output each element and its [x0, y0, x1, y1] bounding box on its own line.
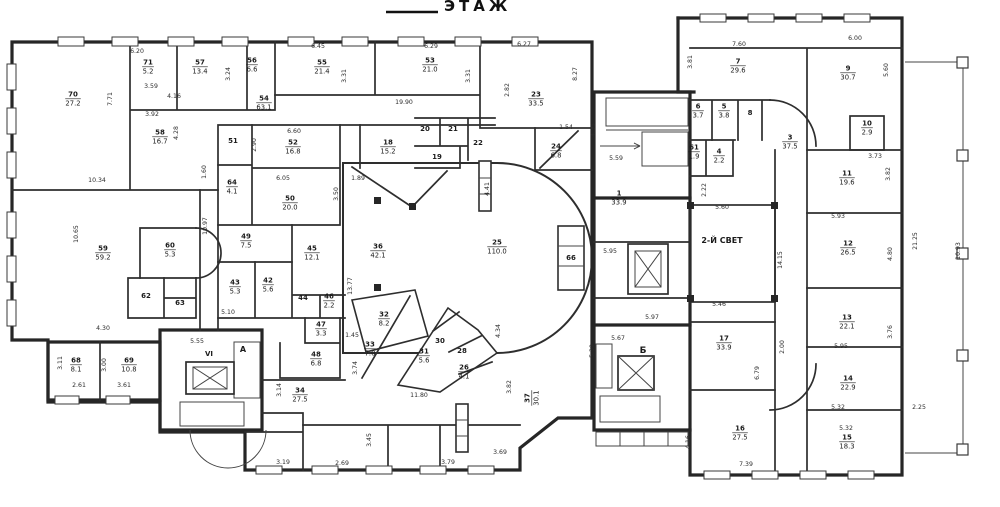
- dim-label: 2.90: [251, 138, 258, 152]
- dim-label: 3.92: [145, 111, 159, 118]
- dim-label: 6.05: [276, 175, 290, 182]
- room-label: 5959.2: [95, 245, 111, 262]
- dim-label: 5.60: [883, 63, 890, 77]
- room-area: 29.6: [730, 67, 745, 75]
- room-num: 15: [842, 434, 852, 442]
- room-area: 3.8: [719, 112, 730, 120]
- room-label: 5321.0: [422, 57, 438, 74]
- room-num: 56: [247, 57, 257, 65]
- room-num: 59: [98, 245, 108, 253]
- room-num: 50: [285, 195, 295, 203]
- dim-label: 3.73: [868, 153, 882, 160]
- room-label: 5713.4: [192, 59, 208, 76]
- dim-label: 7.60: [732, 41, 746, 48]
- room-area: 5.3: [165, 251, 176, 259]
- note-label: VI: [205, 350, 213, 358]
- room-area: 6.6: [247, 66, 258, 74]
- room-area: 10.8: [121, 366, 136, 374]
- dim-label: 5.32: [839, 425, 853, 432]
- room-area: 30.7: [840, 74, 855, 82]
- room-num: 20: [420, 125, 430, 133]
- room-area: 110.0: [487, 248, 506, 256]
- room-label: 644.1: [226, 179, 238, 196]
- dim-label: 10.34: [88, 177, 106, 184]
- room-num: 18: [383, 139, 393, 147]
- dim-label: 5.59: [609, 155, 623, 162]
- dim-label: 2.69: [335, 460, 349, 467]
- room-area: 33.5: [528, 100, 543, 108]
- room-area: 4.1: [459, 373, 470, 381]
- room-label: 53.8: [718, 103, 730, 120]
- room-label: 1422.9: [840, 375, 856, 392]
- room-area: 19.6: [839, 179, 854, 187]
- room-label: 5020.0: [282, 195, 298, 212]
- room-label: 63: [175, 299, 185, 307]
- room-label: 425.6: [262, 277, 274, 294]
- room-num: 51: [228, 137, 238, 145]
- room-label: 42.2: [713, 148, 725, 165]
- dim-label: 2.22: [701, 183, 708, 197]
- room-label: 62: [141, 292, 151, 300]
- room-area: 21.4: [314, 68, 329, 76]
- dim-label: 10.97: [202, 217, 209, 235]
- dim-label: 4.41: [484, 182, 491, 196]
- dim-label: 5.10: [221, 309, 235, 316]
- room-area: 22.1: [839, 323, 854, 331]
- room-num: 5: [722, 103, 727, 111]
- room-label: 5463.1: [256, 95, 272, 112]
- room-num: 60: [165, 242, 175, 250]
- note-label: А: [240, 345, 247, 354]
- room-area: 16.8: [285, 148, 300, 156]
- room-num: 49: [241, 233, 251, 241]
- room-label: 5521.4: [314, 59, 330, 76]
- room-area: 4.1: [227, 188, 238, 196]
- room-label: 605.3: [164, 242, 176, 259]
- dim-label: 3.24: [225, 67, 232, 81]
- room-num: 8: [748, 109, 753, 117]
- room-area: 5.6: [419, 357, 430, 365]
- room-num: 42: [263, 277, 273, 285]
- dim-label: 14.15: [777, 251, 784, 269]
- room-label: 246.8: [550, 143, 562, 160]
- dim-label: 5.93: [831, 213, 845, 220]
- room-num: 26: [459, 364, 469, 372]
- dim-label: 3.11: [57, 356, 64, 370]
- room-label: 611.9: [688, 144, 700, 161]
- dim-label: 8.27: [572, 67, 579, 81]
- room-num: 44: [298, 294, 308, 302]
- dim-label: 10.93: [955, 242, 962, 260]
- room-num: 58: [155, 129, 165, 137]
- dim-label: 4.34: [495, 324, 502, 338]
- room-label: 930.7: [840, 65, 856, 82]
- dim-label: 6.29: [424, 43, 438, 50]
- room-num: 69: [124, 357, 134, 365]
- room-area: 20.0: [282, 204, 297, 212]
- room-label: 6910.8: [121, 357, 137, 374]
- floor-plan-page: ЭТАЖ: [0, 0, 1000, 507]
- dim-label: 3.82: [885, 167, 892, 181]
- room-num: 57: [195, 59, 205, 67]
- dim-label: 5.32: [831, 404, 845, 411]
- dim-label: 5.67: [611, 335, 625, 342]
- dim-label: 4.80: [887, 247, 894, 261]
- room-area: 3.3: [316, 330, 327, 338]
- room-num: 61: [689, 144, 699, 152]
- room-num: 48: [311, 351, 321, 359]
- dim-label: 1.54: [559, 124, 573, 131]
- room-label: 133.9: [611, 190, 627, 207]
- room-area: 16.7: [152, 138, 167, 146]
- room-num: 36: [373, 243, 383, 251]
- room-num: 34: [295, 387, 305, 395]
- dim-label: 4.16: [167, 93, 181, 100]
- dim-label: 3.81: [687, 55, 694, 69]
- room-num: 33: [365, 341, 375, 349]
- dim-label: 4.30: [96, 325, 110, 332]
- room-area: 63.1: [256, 104, 271, 112]
- room-label: 22: [473, 139, 483, 147]
- room-num: 12: [843, 240, 853, 248]
- room-num: 31: [419, 348, 429, 356]
- room-label: 1119.6: [839, 170, 855, 187]
- room-num: 11: [842, 170, 852, 178]
- dim-label: 3.31: [465, 69, 472, 83]
- room-num: 6: [696, 103, 701, 111]
- dim-label: 5.95: [603, 248, 617, 255]
- room-label: 51: [228, 137, 238, 145]
- room-area: 27.5: [732, 434, 747, 442]
- room-label: 315.6: [418, 348, 430, 365]
- floor-title: ЭТАЖ: [444, 0, 511, 15]
- dim-label: 6.27: [517, 41, 531, 48]
- dim-label: 4.35: [590, 123, 597, 137]
- dim-label: 1.60: [201, 165, 208, 179]
- room-num: 19: [432, 153, 442, 161]
- room-label: 566.6: [246, 57, 258, 74]
- room-num: 3: [788, 134, 793, 142]
- dim-label: 5.55: [190, 338, 204, 345]
- room-num: 63: [175, 299, 185, 307]
- room-num: 25: [492, 239, 502, 247]
- room-area: 13.4: [192, 68, 207, 76]
- room-num: 62: [141, 292, 151, 300]
- dim-label: 3.61: [117, 382, 131, 389]
- dim-label: 5.95: [834, 343, 848, 350]
- room-num: 55: [317, 59, 327, 67]
- room-num: 7: [736, 58, 741, 66]
- dim-label: 6.20: [130, 48, 144, 55]
- dim-label: 4.16: [685, 435, 692, 449]
- note-label: Б: [640, 346, 647, 356]
- room-label: 21: [448, 125, 458, 133]
- dim-label: 7.71: [107, 92, 114, 106]
- room-area: 37.5: [782, 143, 797, 151]
- room-label: 7027.2: [65, 91, 81, 108]
- room-area: 30.1: [533, 390, 541, 405]
- room-area: 26.5: [840, 249, 855, 257]
- dim-label: 3.00: [101, 358, 108, 372]
- room-area: 7.5: [241, 242, 252, 250]
- dim-label: 3.79: [441, 459, 455, 466]
- room-label: 3427.5: [292, 387, 308, 404]
- room-label: 19: [432, 153, 442, 161]
- floor-plan-svg: ЭТАЖ: [0, 0, 1000, 507]
- room-label: 66: [566, 254, 576, 262]
- room-num: 30: [435, 337, 445, 345]
- room-num: 53: [425, 57, 435, 65]
- room-num: 1: [617, 190, 622, 198]
- room-label: 1322.1: [839, 314, 855, 331]
- room-label: 1627.5: [732, 425, 748, 442]
- room-num: 66: [566, 254, 576, 262]
- dim-label: 2.61: [72, 382, 86, 389]
- dim-label: 5.46: [712, 301, 726, 308]
- room-area: 6.8: [311, 360, 322, 368]
- dim-label: 5.60: [715, 204, 729, 211]
- room-area: 22.9: [840, 384, 855, 392]
- room-num: 23: [531, 91, 541, 99]
- dim-label: 19.90: [395, 99, 413, 106]
- room-area: 2.2: [324, 302, 335, 310]
- dim-label: 3.14: [276, 383, 283, 397]
- dim-label: 2.25: [912, 404, 926, 411]
- room-area: 59.2: [95, 254, 110, 262]
- room-area: 5.6: [263, 286, 274, 294]
- room-area: 1.9: [689, 153, 700, 161]
- dim-label: 11.80: [410, 392, 428, 399]
- room-num: 68: [71, 357, 81, 365]
- room-area: 7.0: [365, 350, 376, 358]
- room-label: 2333.5: [528, 91, 544, 108]
- room-num: 9: [846, 65, 851, 73]
- room-label: 30: [435, 337, 445, 345]
- room-label: 28: [457, 347, 467, 355]
- room-num: 71: [143, 59, 153, 67]
- room-num: 32: [379, 311, 389, 319]
- room-area: 15.2: [380, 148, 395, 156]
- dim-label: 5.39: [589, 344, 596, 358]
- room-label: 1733.9: [716, 335, 732, 352]
- dim-label: 3.31: [341, 69, 348, 83]
- room-area: 21.0: [422, 66, 437, 74]
- dim-label: 3.69: [493, 449, 507, 456]
- room-area: 5.3: [230, 288, 241, 296]
- room-num: 13: [842, 314, 852, 322]
- room-num: 24: [551, 143, 561, 151]
- room-label: 102.9: [861, 120, 873, 137]
- room-area: 8.1: [71, 366, 82, 374]
- room-area: 27.2: [65, 100, 80, 108]
- room-area: 33.9: [716, 344, 731, 352]
- room-label: 497.5: [240, 233, 252, 250]
- dim-label: 10.65: [73, 225, 80, 243]
- dim-label: 6.60: [287, 128, 301, 135]
- room-label: 1226.5: [840, 240, 856, 257]
- room-label: 473.3: [315, 321, 327, 338]
- dim-label: 5.97: [645, 314, 659, 321]
- dim-label: 1.89: [351, 175, 365, 182]
- dim-label: 3.19: [276, 459, 290, 466]
- room-num: 70: [68, 91, 78, 99]
- dim-label: 2.00: [779, 340, 786, 354]
- dim-label: 6.00: [848, 35, 862, 42]
- room-label: 486.8: [310, 351, 322, 368]
- room-label: 435.3: [229, 279, 241, 296]
- room-area: 6.8: [551, 152, 562, 160]
- room-label: 44: [298, 294, 308, 302]
- dim-label: 3.59: [144, 83, 158, 90]
- room-num: 14: [843, 375, 853, 383]
- room-num: 17: [719, 335, 729, 343]
- dim-label: 7.39: [739, 461, 753, 468]
- room-num: 21: [448, 125, 458, 133]
- dim-label: 2.82: [504, 83, 511, 97]
- room-num: 52: [288, 139, 298, 147]
- room-area: 12.1: [304, 254, 319, 262]
- dim-label: 6.79: [754, 366, 761, 380]
- room-label: 20: [420, 125, 430, 133]
- room-num: 37: [524, 393, 532, 403]
- room-area: 33.9: [611, 199, 626, 207]
- room-label: 1518.3: [839, 434, 855, 451]
- room-area: 18.3: [839, 443, 854, 451]
- room-label: 4512.1: [304, 245, 320, 262]
- room-label: 8: [748, 109, 753, 117]
- room-label: 5816.7: [152, 129, 168, 146]
- room-num: 4: [717, 148, 722, 156]
- dim-label: 13.77: [347, 277, 354, 295]
- dim-label: 3.50: [333, 187, 340, 201]
- dim-label: 4.28: [173, 126, 180, 140]
- room-area: 42.1: [370, 252, 385, 260]
- room-num: 10: [862, 120, 872, 128]
- room-num: 16: [735, 425, 745, 433]
- room-num: 22: [473, 139, 483, 147]
- room-label: 688.1: [70, 357, 82, 374]
- room-num: 64: [227, 179, 237, 187]
- room-area: 2.9: [862, 129, 873, 137]
- room-num: 28: [457, 347, 467, 355]
- room-num: 43: [230, 279, 240, 287]
- room-area: 27.5: [292, 396, 307, 404]
- dim-label: 3.76: [887, 325, 894, 339]
- room-num: 45: [307, 245, 317, 253]
- dim-label: 3.45: [366, 433, 373, 447]
- room-label: 729.6: [730, 58, 746, 75]
- room-label: 715.2: [142, 59, 154, 76]
- room-label: 63.7: [692, 103, 704, 120]
- room-num: 46: [324, 293, 334, 301]
- room-label: 337.0: [364, 341, 376, 358]
- room-num: 47: [316, 321, 326, 329]
- room-num: 54: [259, 95, 269, 103]
- room-label: 1815.2: [380, 139, 396, 156]
- dim-label: 3.82: [506, 380, 513, 394]
- room-label: 462.2: [323, 293, 335, 310]
- room-label: 337.5: [782, 134, 798, 151]
- room-area: 3.7: [693, 112, 704, 120]
- dim-label: 3.74: [352, 361, 359, 375]
- room-area: 8.2: [379, 320, 390, 328]
- room-label: 3730.1: [524, 390, 541, 406]
- room-label: 5216.8: [285, 139, 301, 156]
- room-label: 264.1: [458, 364, 470, 381]
- dim-label: 6.45: [311, 43, 325, 50]
- note-label: 2-Й СВЕТ: [701, 234, 743, 245]
- room-area: 2.2: [714, 157, 725, 165]
- room-label: 328.2: [378, 311, 390, 328]
- room-area: 5.2: [143, 68, 154, 76]
- dim-label: 1.45: [345, 332, 359, 339]
- dim-label: 21.25: [912, 232, 919, 250]
